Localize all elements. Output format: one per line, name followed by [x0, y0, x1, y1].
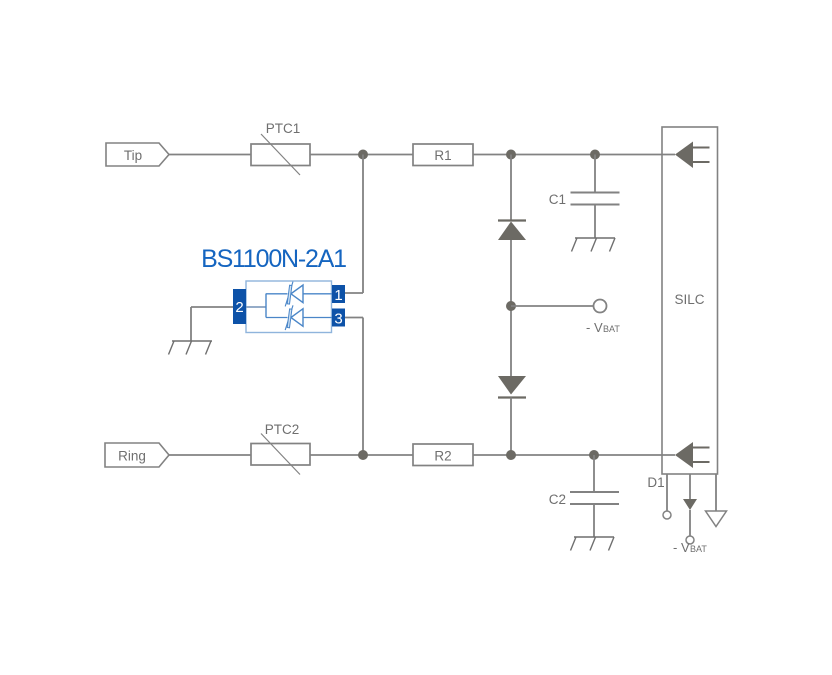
svg-text:Ring: Ring	[118, 449, 146, 464]
svg-text:- V: - V	[673, 540, 690, 555]
svg-text:BAT: BAT	[690, 544, 707, 554]
svg-text:BAT: BAT	[603, 324, 620, 334]
svg-text:R2: R2	[434, 449, 451, 464]
svg-text:Tip: Tip	[124, 148, 142, 163]
svg-text:D1: D1	[647, 475, 664, 490]
svg-text:BS1100N-2A1: BS1100N-2A1	[201, 245, 346, 273]
svg-text:2: 2	[235, 299, 243, 316]
svg-text:R1: R1	[434, 148, 451, 163]
svg-text:C1: C1	[549, 192, 566, 207]
svg-text:3: 3	[334, 311, 342, 328]
svg-text:C2: C2	[549, 492, 566, 507]
svg-text:PTC2: PTC2	[265, 422, 300, 437]
svg-text:SILC: SILC	[674, 292, 704, 307]
svg-text:1: 1	[334, 287, 342, 304]
svg-text:- V: - V	[586, 320, 603, 335]
svg-text:PTC1: PTC1	[266, 121, 301, 136]
